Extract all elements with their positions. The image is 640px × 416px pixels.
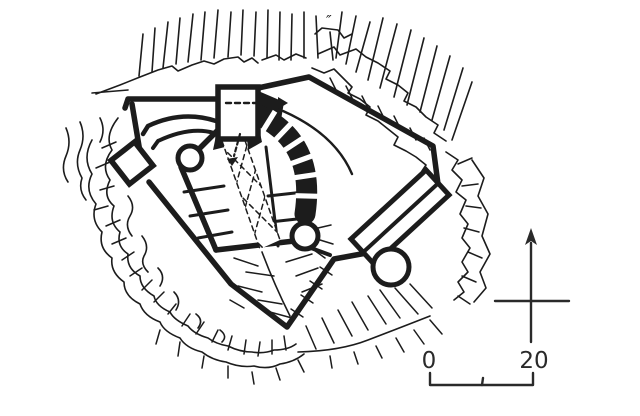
bailey-rubble <box>230 252 322 318</box>
scale-label-end: 20 <box>519 348 548 374</box>
scale-bar: 0 20 <box>422 348 549 385</box>
scale-label-start: 0 <box>422 348 437 374</box>
gatehouse <box>218 87 258 139</box>
north-arrow-icon <box>495 228 569 342</box>
plan-drawing: ″ 0 20 <box>0 0 640 416</box>
southeast-round-tower <box>373 249 409 285</box>
terrain-northeast-rocks <box>312 47 446 177</box>
core-southeast-turret <box>292 223 318 249</box>
terrain-east-scarp <box>446 152 490 304</box>
terrain-south-slope <box>298 284 442 368</box>
west-square-tower <box>111 142 153 184</box>
ditto-mark: ″ <box>326 12 332 30</box>
northwest-round-tower <box>178 146 202 170</box>
approach-path <box>92 90 128 93</box>
castle-plan-figure: ″ 0 20 <box>0 0 640 416</box>
